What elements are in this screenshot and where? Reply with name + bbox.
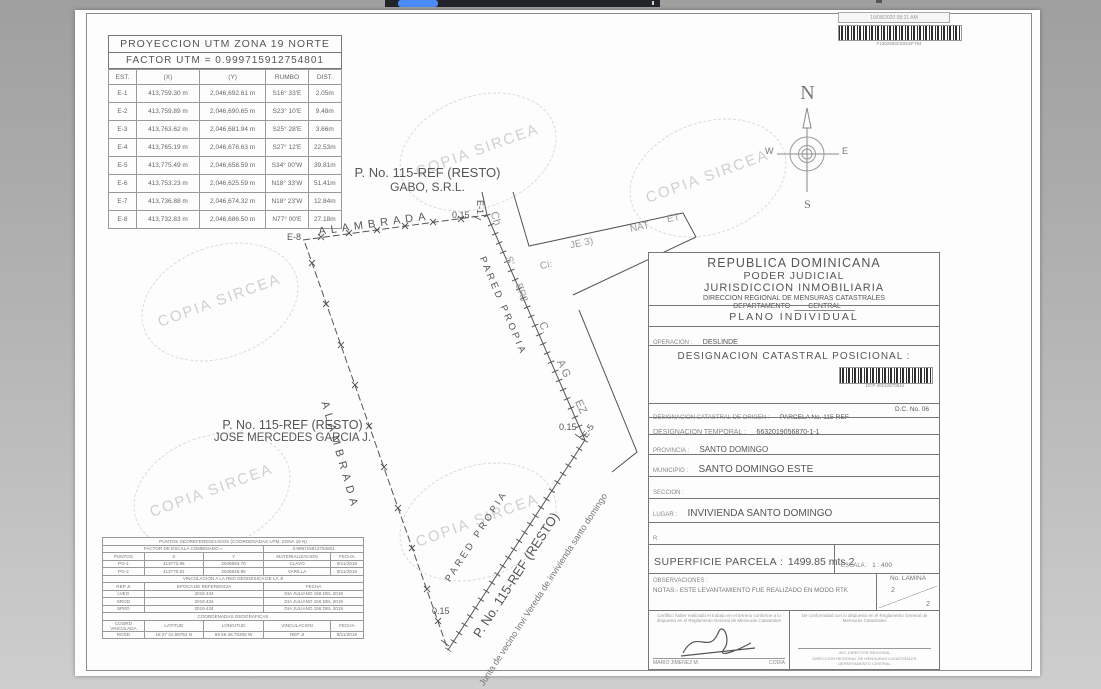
table-cell: FECHA (330, 620, 363, 631)
neighbor-parcel-gabo: P. No. 115-REF (RESTO) GABO, S.R.L. (345, 165, 510, 194)
observaciones-row: OBSERVACIONES : NOTAS:- ESTE LEVANTAMIEN… (649, 573, 939, 610)
table-cell: 413772.95 (144, 560, 203, 568)
table-row: COORDENADAS GEOGRAFICAS (103, 613, 364, 621)
dim-015-north: 0.15 (452, 210, 470, 220)
table-cell: 9/11/2019 (330, 568, 363, 576)
origen-row: DESIGNACION CATASTRAL DE ORIGEN : PARCEL… (649, 403, 939, 417)
street-edge-diagonal (579, 310, 637, 472)
observaciones-label: OBSERVACIONES : (653, 578, 873, 584)
table-row: REP JIEPOCA DE REFERENCIAFECHA (103, 583, 364, 591)
signature-scribble (679, 625, 759, 659)
lamina-cell: No. LAMINA 2 2 (876, 574, 939, 610)
table-cell: 2046693.70 (203, 560, 264, 568)
surveyor-cert-text: Certifico haber realizado el trabajo en … (649, 611, 789, 626)
browser-bar-tick (652, 1, 654, 5)
table-row: PG-2413776.812046649.85VARILLA9/11/2019 (103, 568, 364, 576)
table-cell: 9/11/2019 (330, 631, 363, 639)
table-cell: EPOCA DE REFERENCIA (144, 583, 264, 591)
table-row: PG-1413772.952046693.70CLAVO9/11/2019 (103, 560, 364, 568)
table-cell: ROSD (103, 631, 145, 639)
plano-individual-row: PLANO INDIVIDUAL (649, 305, 939, 326)
surveyor-signature-cell: Certifico haber realizado el trabajo en … (649, 611, 789, 669)
table-cell: PG-1 (103, 560, 145, 568)
operacion-row: OPERACION : DESLINDE (649, 326, 939, 345)
georef-grid: PUNTOS GEOREFERENCIADOS (COORDENADAS UTM… (102, 537, 364, 639)
gabo-owner-line: GABO, S.R.L. (345, 180, 510, 194)
table-cell: LVEG (103, 590, 145, 598)
dcp-barcode (839, 367, 933, 384)
director-cert-text: De conformidad con lo dispuesto en el Re… (790, 611, 939, 626)
table-row: VINCULACION A LA RED GEODESICA DE LA JI (103, 575, 364, 583)
table-cell: VINCULACION A LA RED GEODESICA DE LA JI (103, 575, 364, 583)
seccion-row: SECCION : (649, 476, 939, 498)
table-cell: MATERIALIZACION (264, 553, 330, 561)
superficie-label: SUPERFICIE PARCELA : (654, 556, 783, 568)
table-cell: DIA JULIANO 158 DEL 2019 (264, 598, 364, 606)
jose-parcel-line: P. No. 115-REF (RESTO) (205, 418, 380, 432)
dim-015-south: 0.15 (432, 606, 450, 616)
director-signature-cell: De conformidad con lo dispuesto en el Re… (789, 611, 939, 669)
table-cell: 18 27 41.69752 N (144, 631, 203, 639)
table-cell: CLAVO (264, 560, 330, 568)
table-cell: SPED (103, 605, 145, 613)
table-row: SROD2019.434DIA JULIANO 158 DEL 2019 (103, 598, 364, 606)
superficie-row: SUPERFICIE PARCELA : 1499.85 mts.2 ESCAL… (649, 544, 939, 573)
georef-table: PUNTOS GEOREFERENCIADOS (COORDENADAS UTM… (102, 537, 364, 639)
dc-value: D.C. No. 06 (895, 406, 929, 413)
table-cell: SROD (103, 598, 145, 606)
temporal-row: DESIGNACION TEMPORAL : 6632019056870-1-1 (649, 417, 939, 434)
table-cell: PUNTOS (103, 553, 145, 561)
vertex-e8-label: E-8 (287, 232, 301, 242)
table-cell: REP JI (264, 631, 330, 639)
table-row: COORD VINCULADALATITUDLONGITUDVINCULACIO… (103, 620, 364, 631)
jurisdiccion: JURISDICCION INMOBILIARIA (649, 282, 939, 295)
dcp-title: DESIGNACION CATASTRAL POSICIONAL : (649, 346, 939, 362)
table-cell: LONGITUD (203, 620, 264, 631)
neighbor-parcel-jose: P. No. 115-REF (RESTO) JOSE MERCEDES GAR… (205, 418, 380, 444)
notas-line: NOTAS:- ESTE LEVANTAMIENTO FUE REALIZADO… (653, 587, 873, 594)
table-cell: X (144, 553, 203, 561)
table-cell: VINCULACION (264, 620, 330, 631)
lamina-den: 2 (926, 601, 930, 608)
screenshot-stage: COPIA SIRCEA COPIA SIRCEA COPIA SIRCEA C… (0, 0, 1101, 689)
table-row: SPED2019.434DIA JULIANO 158 DEL 2019 (103, 605, 364, 613)
poder-judicial: PODER JUDICIAL (649, 270, 939, 282)
director-line3: DEPARTAMENTO CENTRAL (798, 661, 931, 666)
lamina-label: No. LAMINA (877, 574, 939, 582)
surveyor-codia: CODIA (769, 660, 785, 666)
jose-owner-line: JOSE MERCEDES GARCIA J. (205, 432, 380, 444)
signatures-row: Certifico haber realizado el trabajo en … (649, 610, 939, 669)
table-cell: DIA JULIANO 158 DEL 2019 (264, 605, 364, 613)
municipio-label: MUNICIPIO : (653, 468, 688, 474)
surveyor-name-line: MARIO JIMENEZ M. CODIA (653, 658, 785, 666)
country-title: REPUBLICA DOMINICANA (649, 256, 939, 270)
table-row: ROSD18 27 41.69752 N69 56 46.76305 WREP … (103, 631, 364, 639)
table-row: PUNTOSXYMATERIALIZACIONFECHA (103, 553, 364, 561)
table-cell: 2019.434 (144, 598, 264, 606)
browser-tab-fragment[interactable] (398, 0, 438, 7)
table-cell: FECHA (330, 553, 363, 561)
table-cell: VARILLA (264, 568, 330, 576)
municipio-row: MUNICIPIO : SANTO DOMINGO ESTE (649, 454, 939, 476)
table-row: PUNTOS GEOREFERENCIADOS (COORDENADAS UTM… (103, 538, 364, 546)
dim-015-east: 0.15 (559, 422, 577, 432)
table-cell: 0.999715912754801 (264, 545, 364, 553)
browser-bar-nub (876, 0, 882, 3)
lugar-label: LUGAR : (653, 512, 677, 518)
table-cell: LATITUD (144, 620, 203, 631)
table-cell: 9/11/2019 (330, 560, 363, 568)
dcp-row: DESIGNACION CATASTRAL POSICIONAL : DCP 4… (649, 345, 939, 403)
escala-cell: ESCALA : 1 : 400 (834, 545, 939, 573)
table-cell: 413776.81 (144, 568, 203, 576)
provincia-row: PROVINCIA : SANTO DOMINGO (649, 434, 939, 454)
lugar-row: LUGAR : INVIVIENDA SANTO DOMINGO (649, 498, 939, 522)
table-cell: 69 56 46.76305 W (203, 631, 264, 639)
table-cell: FACTOR DE ESCALA COMBINADO = (103, 545, 264, 553)
table-cell: PUNTOS GEOREFERENCIADOS (COORDENADAS UTM… (103, 538, 364, 546)
table-cell: 2019.434 (144, 605, 264, 613)
table-row: LVEG2019.434DIA JULIANO 158 DEL 2019 (103, 590, 364, 598)
table-cell: COORDENADAS GEOGRAFICAS (103, 613, 364, 621)
title-block: REPUBLICA DOMINICANA PODER JUDICIAL JURI… (648, 252, 940, 670)
seccion-label: SECCION : (653, 490, 684, 496)
table-cell: 2019.434 (144, 590, 264, 598)
surveyor-name: MARIO JIMENEZ M. (653, 660, 699, 666)
dcp-barcode-code: DCP 40142670544 (839, 383, 931, 388)
table-cell: 2046649.85 (203, 568, 264, 576)
provincia-value: SANTO DOMINGO (699, 445, 768, 454)
blank-row: R (649, 522, 939, 544)
gabo-parcel-line: P. No. 115-REF (RESTO) (345, 165, 510, 180)
director-lines: ING. DIRECTOR REGIONAL DIRECCION REGIONA… (798, 648, 931, 666)
direccion-regional: DIRECCION REGIONAL DE MENSURAS CATASTRAL… (649, 295, 939, 303)
escala-label: ESCALA : (841, 563, 868, 569)
lugar-value: INVIVIENDA SANTO DOMINGO (687, 508, 832, 519)
r-mark: R (653, 536, 657, 542)
title-block-header: REPUBLICA DOMINICANA PODER JUDICIAL JURI… (649, 253, 939, 305)
vertex-e1-label: E-1 (475, 200, 485, 214)
table-cell: REP JI (103, 583, 145, 591)
table-cell: DIA JULIANO 158 DEL 2019 (264, 590, 364, 598)
lamina-num: 2 (891, 587, 895, 594)
table-cell: Y (203, 553, 264, 561)
scanned-plan-page: COPIA SIRCEA COPIA SIRCEA COPIA SIRCEA C… (75, 10, 1040, 676)
municipio-value: SANTO DOMINGO ESTE (698, 464, 813, 475)
escala-value: 1 : 400 (872, 562, 892, 569)
table-row: FACTOR DE ESCALA COMBINADO =0.9997159127… (103, 545, 364, 553)
table-cell: COORD VINCULADA (103, 620, 145, 631)
table-cell: PG-2 (103, 568, 145, 576)
table-cell: FECHA (264, 583, 364, 591)
